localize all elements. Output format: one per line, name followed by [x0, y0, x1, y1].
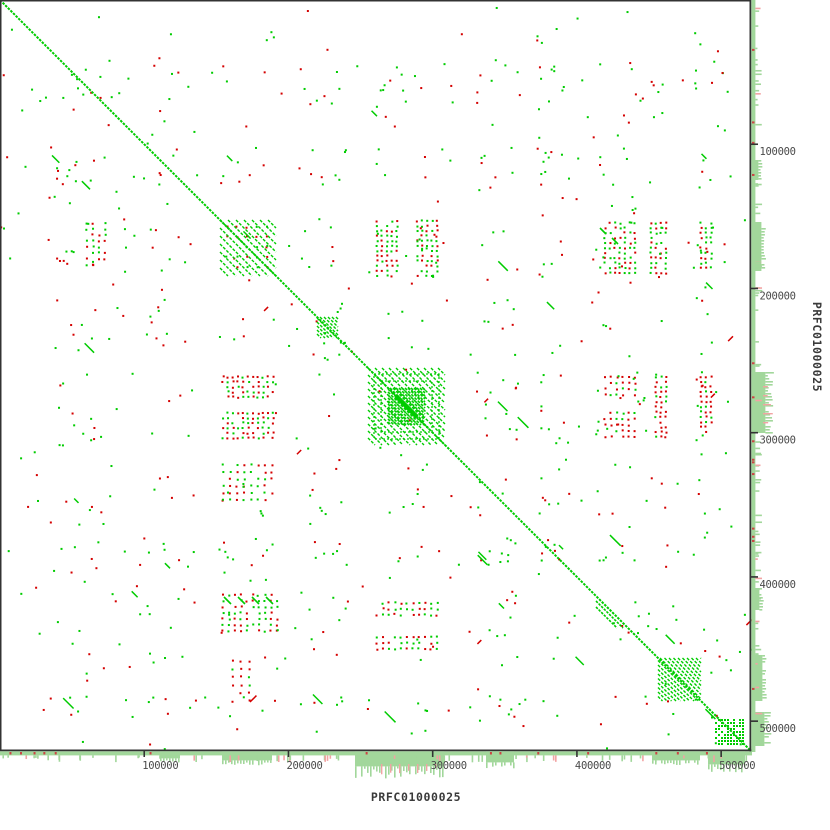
- x-tick-label: 300000: [431, 760, 467, 772]
- y-tick-label: 100000: [760, 146, 796, 158]
- dotplot-svg: 1000002000003000004000005000001000002000…: [0, 0, 830, 830]
- y-tick-label: 200000: [760, 290, 796, 302]
- y-sequence-label: PRFC01000025: [810, 302, 824, 392]
- y-tick-label: 500000: [760, 723, 796, 735]
- x-tick-label: 500000: [719, 760, 755, 772]
- dotplot-canvas[interactable]: 1000002000003000004000005000001000002000…: [0, 0, 830, 830]
- y-tick-label: 400000: [760, 579, 796, 591]
- x-tick-label: 400000: [575, 760, 611, 772]
- y-tick-label: 300000: [760, 435, 796, 447]
- x-tick-label: 100000: [142, 760, 178, 772]
- dotplot-page: 1000002000003000004000005000001000002000…: [0, 0, 830, 830]
- x-sequence-label: PRFC01000025: [371, 790, 461, 804]
- x-tick-label: 200000: [286, 760, 322, 772]
